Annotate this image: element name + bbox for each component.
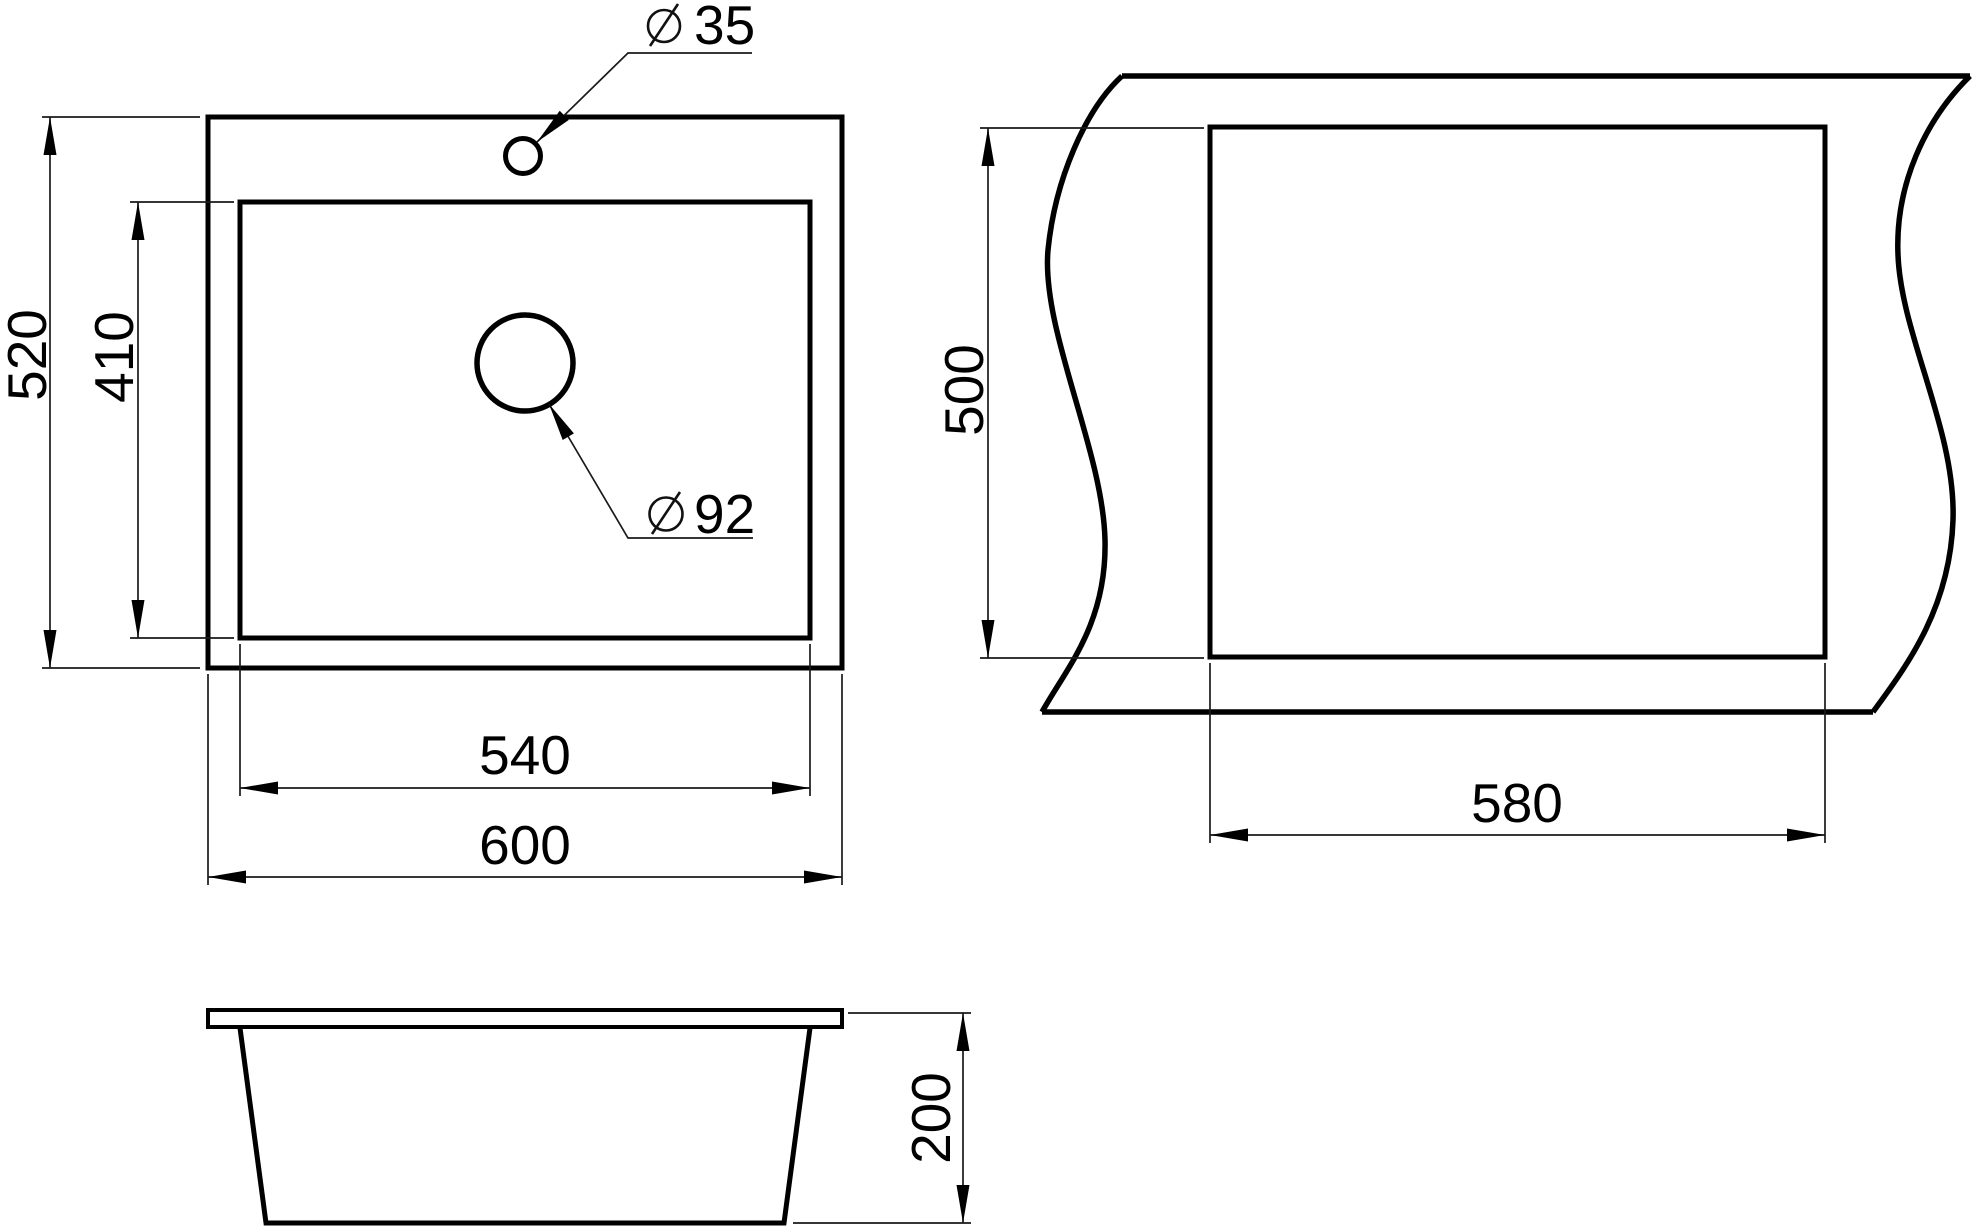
dim-label-92: 92 xyxy=(694,483,755,545)
dim-label-600: 600 xyxy=(479,814,571,876)
top-view: 520 410 540 600 xyxy=(0,0,842,885)
leader-arrowhead xyxy=(549,404,574,440)
callout-dia-92: 92 xyxy=(549,404,755,545)
dim-label-410: 410 xyxy=(83,311,145,403)
sink-dimension-drawing: 520 410 540 600 xyxy=(0,0,1974,1231)
arrowhead-right xyxy=(772,782,810,795)
cutout-view: 500 580 xyxy=(933,76,1970,843)
dim-label-200: 200 xyxy=(900,1072,962,1164)
dim-200: 200 xyxy=(793,1013,971,1223)
arrowhead-right xyxy=(1787,829,1825,842)
dim-label-520: 520 xyxy=(0,309,58,401)
dim-label-580: 580 xyxy=(1471,772,1563,834)
callout-dia-35: 35 xyxy=(537,0,755,142)
sink-bowl-outline xyxy=(240,202,810,638)
countertop-right-break-line xyxy=(1873,76,1970,712)
dim-label-540: 540 xyxy=(479,724,571,786)
arrowhead-left xyxy=(240,782,278,795)
arrowhead-left xyxy=(1210,829,1248,842)
dim-label-35: 35 xyxy=(694,0,755,56)
arrowhead-down xyxy=(982,620,995,658)
arrowhead-up xyxy=(44,117,57,155)
arrowhead-down xyxy=(957,1185,970,1223)
technical-drawing-page: 520 410 540 600 xyxy=(0,0,1974,1231)
dim-410: 410 xyxy=(83,202,234,638)
sink-rim-flange xyxy=(208,1010,842,1027)
arrowhead-down xyxy=(44,630,57,668)
cutout-outline xyxy=(1210,127,1825,657)
arrowhead-right xyxy=(804,871,842,884)
arrowhead-up xyxy=(957,1013,970,1051)
dim-label-500: 500 xyxy=(933,344,995,436)
drain-hole xyxy=(477,315,573,411)
diameter-symbol-icon xyxy=(648,4,680,46)
sink-body-profile xyxy=(240,1028,810,1223)
dim-580: 580 xyxy=(1210,663,1825,843)
diameter-symbol-icon xyxy=(650,492,683,534)
arrowhead-up xyxy=(132,202,145,240)
arrowhead-down xyxy=(132,600,145,638)
leader-line xyxy=(537,53,752,142)
faucet-hole xyxy=(506,139,541,174)
side-view: 200 xyxy=(208,1010,971,1223)
arrowhead-up xyxy=(982,128,995,166)
countertop-left-break-line xyxy=(1042,76,1122,712)
arrowhead-left xyxy=(208,871,246,884)
dim-500: 500 xyxy=(933,128,1204,658)
